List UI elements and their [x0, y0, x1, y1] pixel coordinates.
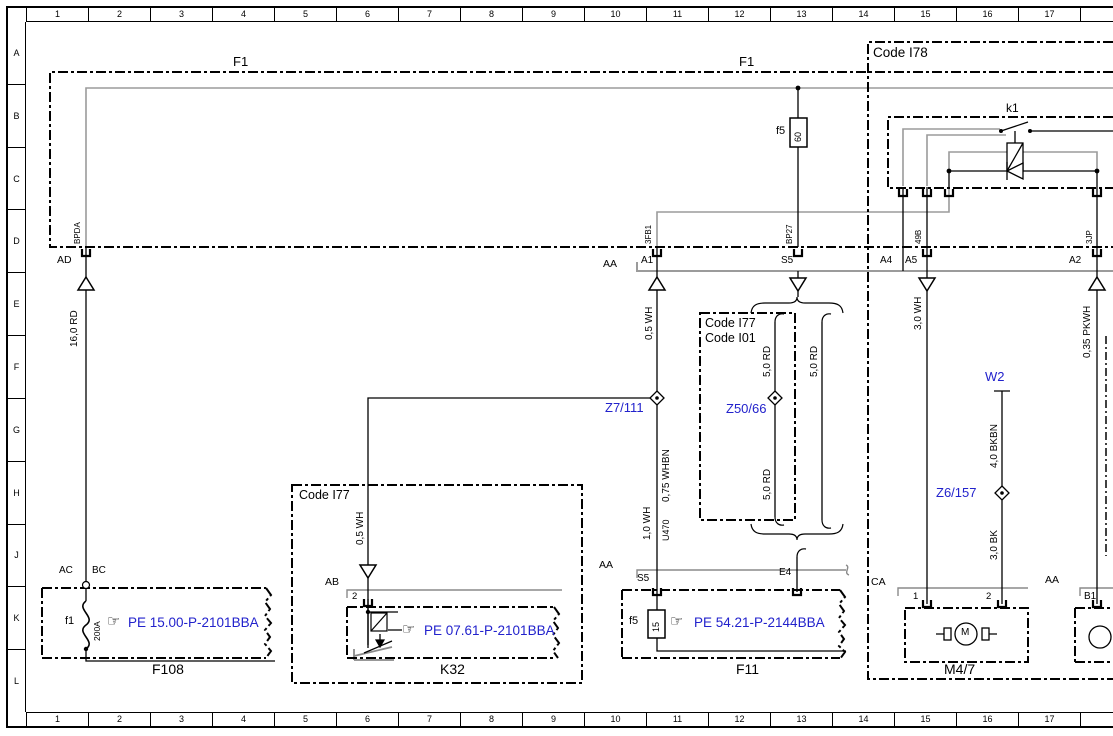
- brace-top: [751, 297, 843, 313]
- wire-label-4bkbn: 4,0 BKBN: [990, 424, 1000, 468]
- ruler-cell: J: [8, 525, 25, 588]
- k32-code-label: Code I77: [299, 489, 350, 502]
- ruler-cell: 4: [213, 713, 275, 726]
- f1-box: [50, 72, 1113, 247]
- wire-label-075whbn: 0,75 WHBN: [662, 449, 672, 502]
- wire-label-05wh-a: 0,5 WH: [645, 307, 655, 340]
- ruler-cell: 6: [337, 8, 399, 21]
- motor-brush-left: [944, 628, 951, 640]
- ac-bc-node: [83, 582, 90, 589]
- ruler-cell: G: [8, 399, 25, 462]
- ruler-cell: 1: [27, 8, 89, 21]
- ruler-cell-blank: [1081, 713, 1113, 726]
- ruler-cell: D: [8, 210, 25, 273]
- m47-pin-2: 2: [986, 592, 991, 602]
- ruler-cell: A: [8, 22, 25, 85]
- connector-ac: AC: [59, 566, 73, 576]
- brace-bottom: [751, 524, 843, 540]
- component-boxes: [42, 42, 1113, 683]
- pin-a5: A5: [905, 256, 917, 266]
- f11-bus: [637, 565, 849, 578]
- link-w2[interactable]: W2: [985, 370, 1005, 383]
- link-z50-66[interactable]: Z50/66: [726, 402, 766, 415]
- triangle-ab-down: [360, 565, 376, 578]
- ruler-cell: F: [8, 336, 25, 399]
- k1-relay: [1007, 143, 1023, 180]
- triangle-ad-up: [78, 277, 94, 290]
- wire-label-5rd-c: 5,0 RD: [810, 346, 820, 377]
- wire-label-05wh-b: 0,5 WH: [356, 512, 366, 545]
- ruler-cell: 14: [833, 713, 895, 726]
- sleeve-label-3fb1: 3FB1: [645, 225, 653, 244]
- link-z7-111[interactable]: Z7/111: [605, 401, 644, 414]
- f108-strip-fuse: [83, 601, 89, 649]
- connector-ab: AB: [325, 577, 339, 588]
- ruler-cell: L: [8, 650, 25, 712]
- hand-icon: ☞: [670, 614, 683, 629]
- f11-exit: [657, 638, 846, 651]
- ruler-cell: 12: [709, 713, 771, 726]
- ruler-cell: 9: [523, 8, 585, 21]
- f1-label-left: F1: [233, 55, 248, 68]
- ruler-cell: 11: [647, 8, 709, 21]
- f11-pin-e4: E4: [779, 568, 791, 578]
- k32-relay-symbol: [371, 613, 387, 647]
- ruler-cell: 13: [771, 713, 833, 726]
- f108-fuse-rating: 200A: [93, 621, 102, 641]
- triangle-s5-down: [790, 278, 806, 291]
- ruler-cell: 7: [399, 713, 461, 726]
- hand-icon: ☞: [107, 614, 120, 629]
- m47-label: M4/7: [944, 662, 975, 676]
- ruler-cell: 2: [89, 713, 151, 726]
- link-pe-f108[interactable]: PE 15.00-P-2101BBA: [128, 616, 259, 630]
- k1-gray-1: [903, 129, 1000, 186]
- ruler-corner-top: [6, 6, 26, 22]
- right-pin-b1: B1: [1084, 592, 1096, 602]
- triangle-a2-up: [1089, 277, 1105, 290]
- hook-inner-top: [775, 314, 784, 322]
- k32-label: K32: [440, 662, 465, 676]
- ruler-cell: B: [8, 85, 25, 148]
- ruler-cell: 4: [213, 8, 275, 21]
- ruler-cell: 16: [957, 713, 1019, 726]
- ruler-cell: H: [8, 462, 25, 525]
- ruler-corner-bottom: [6, 712, 26, 728]
- code-i78-box: [868, 42, 1113, 679]
- wire-label-3bk: 3,0 BK: [990, 530, 1000, 560]
- k32-pin-2: 2: [352, 592, 357, 602]
- ruler-cell: 8: [461, 8, 523, 21]
- ruler-cell: K: [8, 587, 25, 650]
- f11-fuse-rating: 15: [652, 622, 661, 632]
- code-i77-label: Code I77: [705, 317, 756, 330]
- sleeve-bp27: [794, 249, 802, 256]
- ruler-bottom: 1234567891011121314151617: [26, 712, 1113, 728]
- sleeve-label-49b: 49B: [915, 230, 923, 244]
- ruler-cell: E: [8, 273, 25, 336]
- motor-brush-right: [982, 628, 989, 640]
- hook-outer-bottom: [822, 520, 831, 528]
- gray-harness-lines: [86, 88, 1113, 271]
- junction-dots: [84, 86, 1100, 652]
- k1-switch: [1001, 122, 1113, 143]
- ruler-cell: 11: [647, 713, 709, 726]
- pin-a2: A2: [1069, 256, 1081, 266]
- m47-pin-1: 1: [913, 592, 918, 602]
- ruler-cell: 15: [895, 8, 957, 21]
- link-pe-f11[interactable]: PE 54.21-P-2144BBA: [694, 616, 825, 630]
- motor-m-glyph: M: [961, 628, 969, 638]
- ruler-cell: 12: [709, 8, 771, 21]
- pump-symbol: [1089, 626, 1111, 648]
- ruler-cell: 6: [337, 713, 399, 726]
- ruler-cell: 8: [461, 713, 523, 726]
- link-z6-157[interactable]: Z6/157: [936, 486, 976, 499]
- hook-outer-top: [822, 314, 831, 322]
- f1-label-right: F1: [739, 55, 754, 68]
- ruler-left: ABCDEFGHJKL: [6, 22, 26, 712]
- connector-ad: AD: [57, 255, 72, 266]
- pump-circle: [1089, 626, 1111, 648]
- code-i01-label: Code I01: [705, 332, 756, 345]
- ruler-cell: 1: [27, 713, 89, 726]
- pin-s5: S5: [781, 256, 793, 266]
- k32-bus: [347, 590, 562, 598]
- connector-bc: BC: [92, 566, 106, 576]
- link-pe-k32[interactable]: PE 07.61-P-2101BBA: [424, 624, 555, 638]
- component-bus-brackets: [347, 565, 1113, 660]
- wires-black: [83, 88, 1113, 661]
- sleeve-label-3jp: 3JP: [1086, 230, 1094, 244]
- wire-label-1wh: 1,0 WH: [643, 507, 653, 540]
- right-connector-aa: AA: [1045, 575, 1059, 586]
- ruler-cell: 14: [833, 8, 895, 21]
- triangle-a5-down: [919, 278, 935, 291]
- sleeve-label-bp27: BP27: [786, 224, 794, 244]
- hand-icon: ☞: [402, 622, 415, 637]
- pin-a1: A1: [641, 256, 653, 266]
- code-i78-label: Code I78: [873, 46, 928, 60]
- ruler-cell: 5: [275, 713, 337, 726]
- wire-label-035pkwh: 0,35 PKWH: [1083, 306, 1093, 358]
- wire-label-5rd-b: 5,0 RD: [763, 469, 773, 500]
- fuse-symbols: [648, 118, 807, 638]
- hook-e4: [797, 549, 806, 557]
- ruler-cell: 16: [957, 8, 1019, 21]
- ruler-cell: 9: [523, 713, 585, 726]
- pin-a4: A4: [880, 256, 892, 266]
- wiring-diagram-page: { "colors": { "link": "#2222cc", "line":…: [0, 0, 1113, 736]
- bus-30-rail: [86, 88, 1113, 246]
- ruler-cell: 5: [275, 8, 337, 21]
- sleeve-label-bpda: BPDA: [74, 222, 82, 244]
- ruler-cell: 7: [399, 8, 461, 21]
- k1-gray-2: [927, 135, 1006, 186]
- k32-arrow-head: [376, 640, 384, 647]
- ruler-cell-blank: [1081, 8, 1113, 21]
- f108-fuse-name: f1: [65, 616, 74, 627]
- ruler-cell: 10: [585, 8, 647, 21]
- ruler-cell: 3: [151, 713, 213, 726]
- f11-connector-aa: AA: [599, 560, 613, 571]
- f11-fuse-name: f5: [629, 616, 638, 627]
- sleeve-k1-pins: [899, 189, 1101, 196]
- f11-pin-s5: S5: [637, 574, 649, 584]
- ruler-cell: 17: [1019, 8, 1081, 21]
- ruler-cell: 3: [151, 8, 213, 21]
- braces-and-hooks: [751, 297, 843, 557]
- wire-label-5rd-a: 5,0 RD: [763, 346, 773, 377]
- hook-inner-bottom: [775, 517, 784, 525]
- wire-label-16rd: 16,0 RD: [70, 310, 80, 347]
- wire-z7-to-k32: [368, 398, 657, 648]
- direction-triangles: [78, 277, 1105, 578]
- fuse-f5-name: f5: [776, 126, 785, 137]
- fuse-f5-rating: 60: [794, 132, 803, 142]
- triangle-a1-up: [649, 277, 665, 290]
- f11-label: F11: [736, 662, 759, 676]
- aa-bus-line: [637, 262, 1113, 271]
- wire-label-u470: U470: [662, 519, 671, 541]
- k1-label: k1: [1006, 102, 1019, 114]
- ruler-cell: 17: [1019, 713, 1081, 726]
- k1-pin-drops: [903, 187, 1097, 271]
- ruler-cell: 2: [89, 8, 151, 21]
- connector-ca: CA: [871, 577, 886, 588]
- ruler-cell: 15: [895, 713, 957, 726]
- connector-aa: AA: [603, 259, 617, 270]
- f108-exit: [86, 649, 275, 661]
- ruler-cell: 10: [585, 713, 647, 726]
- splice-diamonds: [650, 391, 1009, 500]
- ruler-top: 1234567891011121314151617: [26, 6, 1113, 22]
- wire-label-3wh: 3,0 WH: [914, 297, 924, 330]
- ruler-cell: 13: [771, 8, 833, 21]
- f108-label: F108: [152, 662, 184, 676]
- ruler-cell: C: [8, 148, 25, 211]
